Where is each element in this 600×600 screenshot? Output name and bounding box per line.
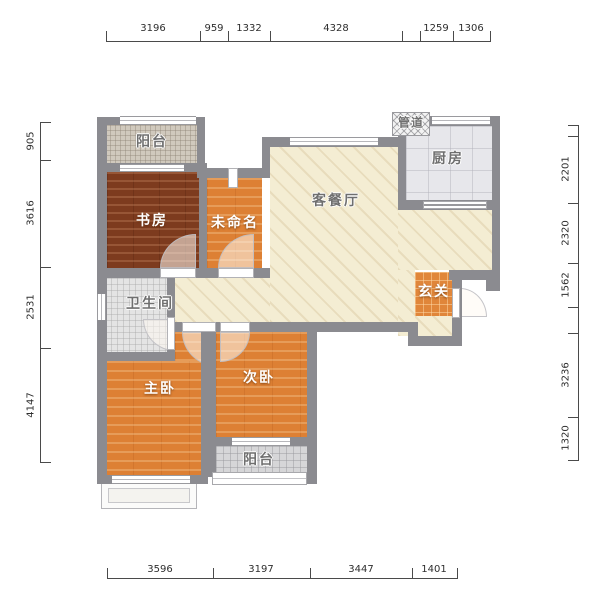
dimension-tick xyxy=(40,348,51,349)
dimension-label: 1320 xyxy=(561,425,572,450)
second-door-leaf xyxy=(220,322,250,332)
dimension-tick xyxy=(490,31,491,42)
wall-bedroom-divider xyxy=(201,322,216,477)
bathroom-left-window xyxy=(97,294,106,320)
dimension-label: 2320 xyxy=(561,220,572,245)
dimension-tick xyxy=(568,460,579,461)
second-balcony-window xyxy=(232,437,290,446)
entry-surround-floor2 xyxy=(415,316,452,336)
wall-right-upper-outer xyxy=(492,116,500,280)
room-label-balcony-bottom: 阳台 xyxy=(243,449,275,469)
room-label-second-bedroom: 次卧 xyxy=(243,367,275,387)
unnamed-door-leaf xyxy=(218,268,254,278)
dimension-label: 3616 xyxy=(26,200,37,225)
dimension-label: 3236 xyxy=(561,362,572,387)
kitchen-top-window xyxy=(432,116,490,125)
balcony-bottom-railing xyxy=(212,472,307,485)
dimension-label: 3447 xyxy=(348,564,373,575)
master-bottom-window xyxy=(112,475,190,484)
room-label-balcony-top: 阳台 xyxy=(136,131,168,151)
balcony-study-window xyxy=(120,164,184,172)
dimension-tick xyxy=(40,462,51,463)
dimension-label: 959 xyxy=(204,23,223,34)
bathroom-door-leaf xyxy=(167,317,175,350)
dimension-label: 4328 xyxy=(323,23,348,34)
room-label-duct: 管道 xyxy=(398,114,424,131)
dimension-tick xyxy=(457,568,458,579)
balcony-top-window xyxy=(120,116,196,125)
dimension-line-bottom xyxy=(107,578,457,579)
wall-entry-stub xyxy=(486,278,500,291)
unnamed-top-notch xyxy=(228,168,238,188)
room-label-study: 书房 xyxy=(136,210,168,230)
entry-door-arc xyxy=(460,288,487,317)
room-label-living-dining: 客餐厅 xyxy=(312,190,360,210)
study-door-leaf xyxy=(160,268,196,278)
dimension-line-top xyxy=(106,41,490,42)
room-label-bathroom: 卫生间 xyxy=(126,293,174,313)
wall-bathroom-bottom xyxy=(97,352,175,361)
dimension-label: 2201 xyxy=(561,156,572,181)
dimension-label: 3197 xyxy=(248,564,273,575)
master-bay-window-inner xyxy=(108,488,190,503)
wall-right-lower-outer xyxy=(307,322,317,484)
dimension-label: 1306 xyxy=(458,23,483,34)
room-label-master-bedroom: 主卧 xyxy=(144,378,176,398)
dimension-label: 1332 xyxy=(236,23,261,34)
room-label-kitchen: 厨房 xyxy=(432,148,464,168)
room-label-entry: 玄关 xyxy=(418,281,450,301)
dimension-line-left xyxy=(40,122,41,462)
kitchen-sliding-door xyxy=(423,201,487,209)
dimension-label: 3196 xyxy=(140,23,165,34)
wall-entry-jog-horizontal xyxy=(408,336,462,346)
dimension-label: 2531 xyxy=(26,294,37,319)
hallway-floor xyxy=(175,278,270,322)
entry-door-leaf xyxy=(452,288,460,318)
dimension-label: 3596 xyxy=(147,564,172,575)
dimension-label: 1562 xyxy=(561,272,572,297)
dimension-tick xyxy=(40,267,51,268)
dimension-line-right xyxy=(578,125,579,460)
dimension-tick xyxy=(40,122,51,123)
dimension-label: 1401 xyxy=(421,564,446,575)
living-top-window xyxy=(290,137,378,146)
master-door-leaf xyxy=(182,322,216,332)
living-floor-main xyxy=(270,147,398,322)
floor-plan: 阳台 书房 未命名 客餐厅 厨房 管道 玄关 卫生间 主卧 次卧 阳台 3196… xyxy=(0,0,600,600)
wall-study-right xyxy=(199,163,207,278)
room-label-unnamed: 未命名 xyxy=(211,212,259,232)
dimension-label: 1259 xyxy=(423,23,448,34)
dimension-label: 905 xyxy=(26,131,37,150)
dimension-label: 4147 xyxy=(26,392,37,417)
dimension-tick xyxy=(40,160,51,161)
living-floor-right xyxy=(398,210,492,270)
